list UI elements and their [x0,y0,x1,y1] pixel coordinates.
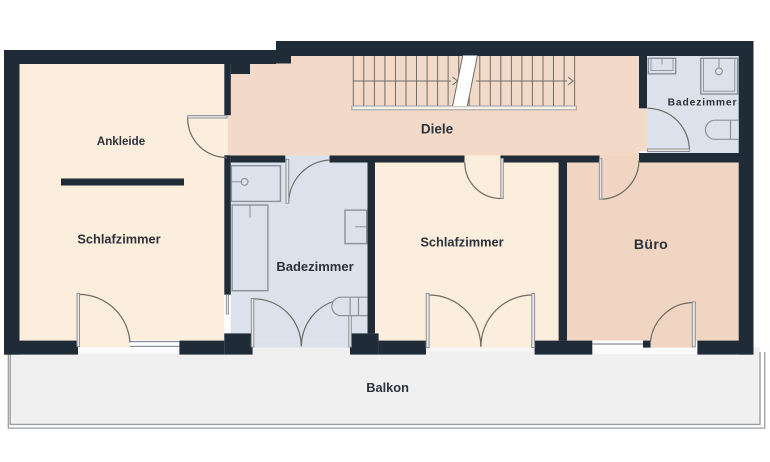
svg-text:Ankleide: Ankleide [97,135,146,148]
svg-text:Badezimmer: Badezimmer [668,97,738,108]
svg-text:Schlafzimmer: Schlafzimmer [420,234,503,249]
svg-text:Balkon: Balkon [366,380,409,395]
svg-text:Schlafzimmer: Schlafzimmer [77,231,160,246]
svg-text:Diele: Diele [421,122,454,137]
svg-text:Badezimmer: Badezimmer [276,259,353,274]
svg-text:Büro: Büro [634,236,668,252]
